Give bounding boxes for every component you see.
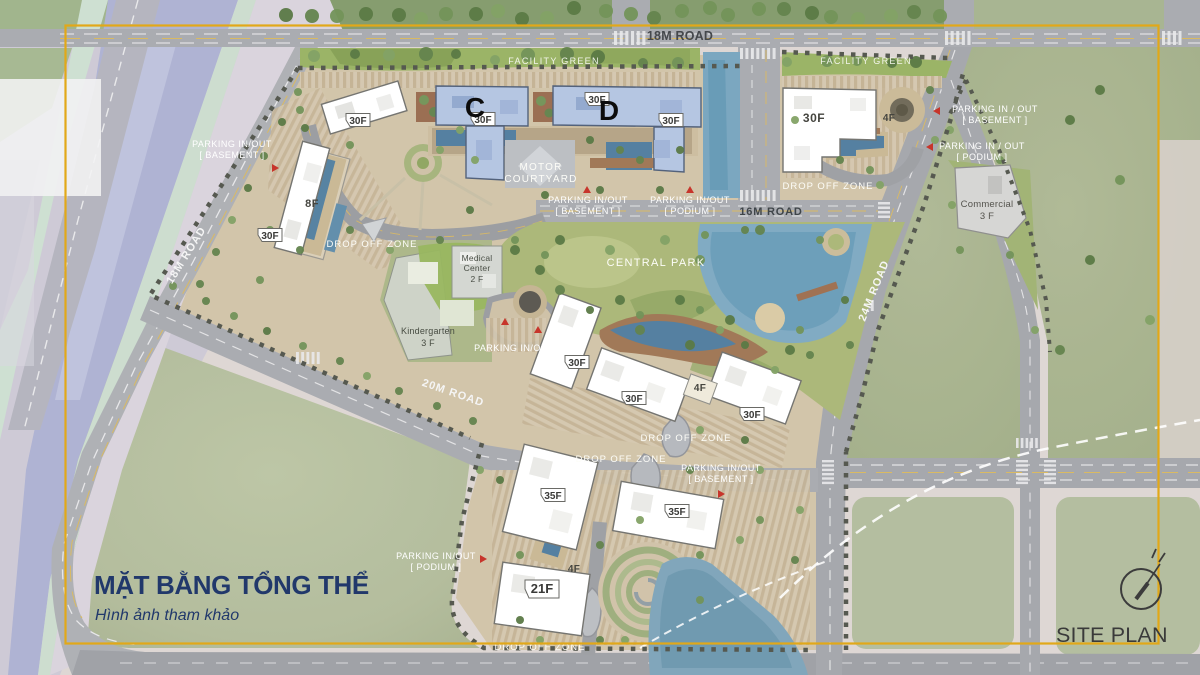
- svg-text:SITE PLAN: SITE PLAN: [1056, 623, 1168, 647]
- svg-text:3 F: 3 F: [421, 338, 435, 348]
- svg-text:2 F: 2 F: [471, 274, 484, 284]
- svg-text:PARKING IN / OUT: PARKING IN / OUT: [939, 141, 1025, 151]
- svg-text:18M ROAD: 18M ROAD: [647, 29, 713, 43]
- svg-text:PARKING IN/OUT: PARKING IN/OUT: [650, 195, 730, 205]
- svg-text:30F: 30F: [349, 116, 366, 127]
- svg-text:16M ROAD: 16M ROAD: [739, 206, 802, 218]
- svg-text:Commercial: Commercial: [961, 199, 1014, 210]
- svg-text:[ BASEMENT ]: [ BASEMENT ]: [688, 474, 753, 484]
- svg-text:FACILITY GREEN: FACILITY GREEN: [508, 56, 600, 66]
- svg-text:DROP OFF ZONE: DROP OFF ZONE: [327, 239, 418, 250]
- svg-text:PARKING IN / OUT: PARKING IN / OUT: [952, 104, 1038, 114]
- svg-text:MOTOR: MOTOR: [519, 162, 562, 173]
- svg-text:30F: 30F: [662, 116, 679, 127]
- svg-text:PARKING IN/OUT: PARKING IN/OUT: [474, 343, 554, 353]
- svg-text:CENTRAL PARK: CENTRAL PARK: [607, 257, 706, 269]
- svg-text:PARKING IN/OUT: PARKING IN/OUT: [192, 139, 272, 149]
- svg-text:[ BASEMENT ]: [ BASEMENT ]: [555, 206, 620, 216]
- svg-text:35F: 35F: [668, 507, 685, 518]
- svg-text:D: D: [599, 95, 619, 126]
- svg-text:DROP OFF ZONE: DROP OFF ZONE: [576, 454, 667, 465]
- svg-text:PARKING IN/OUT: PARKING IN/OUT: [396, 551, 476, 561]
- svg-text:[ BASEMENT ]: [ BASEMENT ]: [962, 115, 1027, 125]
- svg-text:[ PODIUM ]: [ PODIUM ]: [956, 152, 1007, 162]
- svg-text:30F: 30F: [568, 358, 585, 369]
- svg-text:4F: 4F: [568, 564, 580, 575]
- svg-text:DROP OFF ZONE: DROP OFF ZONE: [641, 433, 732, 444]
- svg-text:Hình ảnh tham khảo: Hình ảnh tham khảo: [95, 607, 239, 624]
- svg-text:35F: 35F: [544, 491, 561, 502]
- svg-text:30F: 30F: [803, 111, 825, 125]
- svg-text:COURTYARD: COURTYARD: [504, 174, 577, 185]
- svg-text:[ PODIUM ]: [ PODIUM ]: [664, 206, 715, 216]
- svg-text:8F: 8F: [305, 198, 319, 210]
- svg-text:3 F: 3 F: [980, 211, 994, 222]
- svg-text:C: C: [465, 92, 485, 123]
- svg-text:PARKING IN/OUT: PARKING IN/OUT: [681, 463, 761, 473]
- svg-text:FACILITY GREEN: FACILITY GREEN: [820, 56, 912, 66]
- svg-text:Kindergarten: Kindergarten: [401, 326, 455, 336]
- svg-text:DROP OFF ZONE: DROP OFF ZONE: [783, 181, 874, 192]
- svg-text:4F: 4F: [883, 113, 895, 124]
- svg-text:30F: 30F: [625, 394, 642, 405]
- svg-text:[ BASEMENT ]: [ BASEMENT ]: [199, 150, 264, 160]
- svg-text:4F: 4F: [694, 383, 706, 394]
- svg-text:Center: Center: [464, 263, 491, 273]
- svg-text:MẶT BẰNG TỔNG THỂ: MẶT BẰNG TỔNG THỂ: [94, 570, 369, 600]
- svg-text:PARKING IN/OUT: PARKING IN/OUT: [548, 195, 628, 205]
- svg-text:[ PODIUM ]: [ PODIUM ]: [410, 562, 461, 572]
- svg-text:30F: 30F: [743, 410, 760, 421]
- svg-text:21F: 21F: [531, 581, 553, 596]
- svg-text:30F: 30F: [261, 231, 278, 242]
- svg-text:Medical: Medical: [462, 253, 493, 263]
